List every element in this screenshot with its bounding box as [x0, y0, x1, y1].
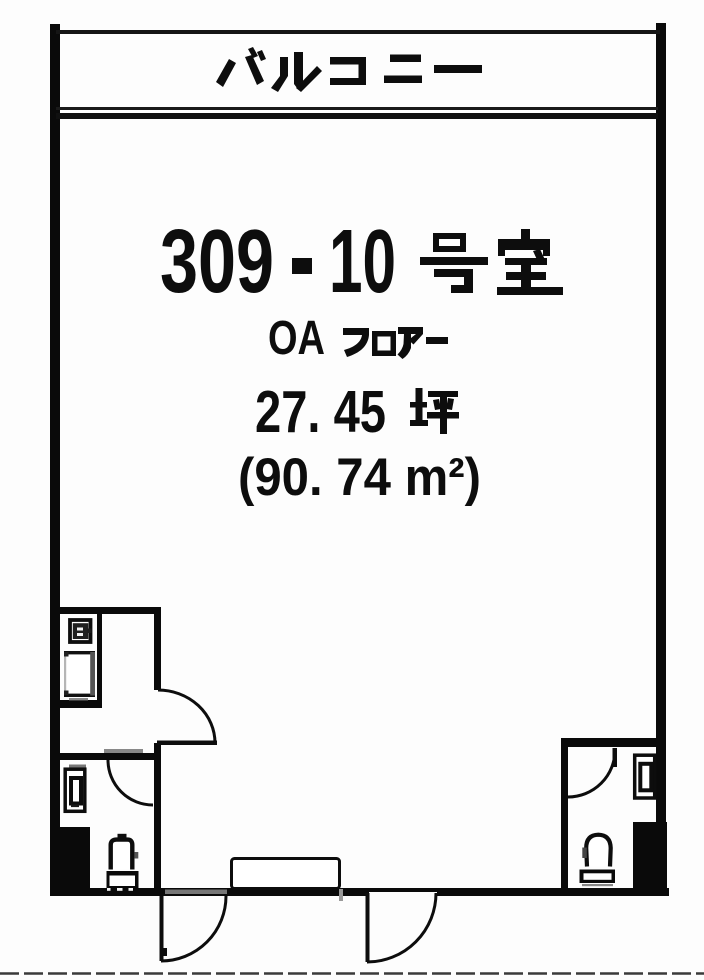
svg-text:10: 10 [329, 212, 396, 312]
svg-text:(90. 74 m²): (90. 74 m²) [238, 448, 481, 507]
svg-text:27. 45: 27. 45 [255, 379, 386, 445]
svg-text:OA: OA [268, 312, 325, 365]
svg-text:309: 309 [160, 212, 274, 312]
